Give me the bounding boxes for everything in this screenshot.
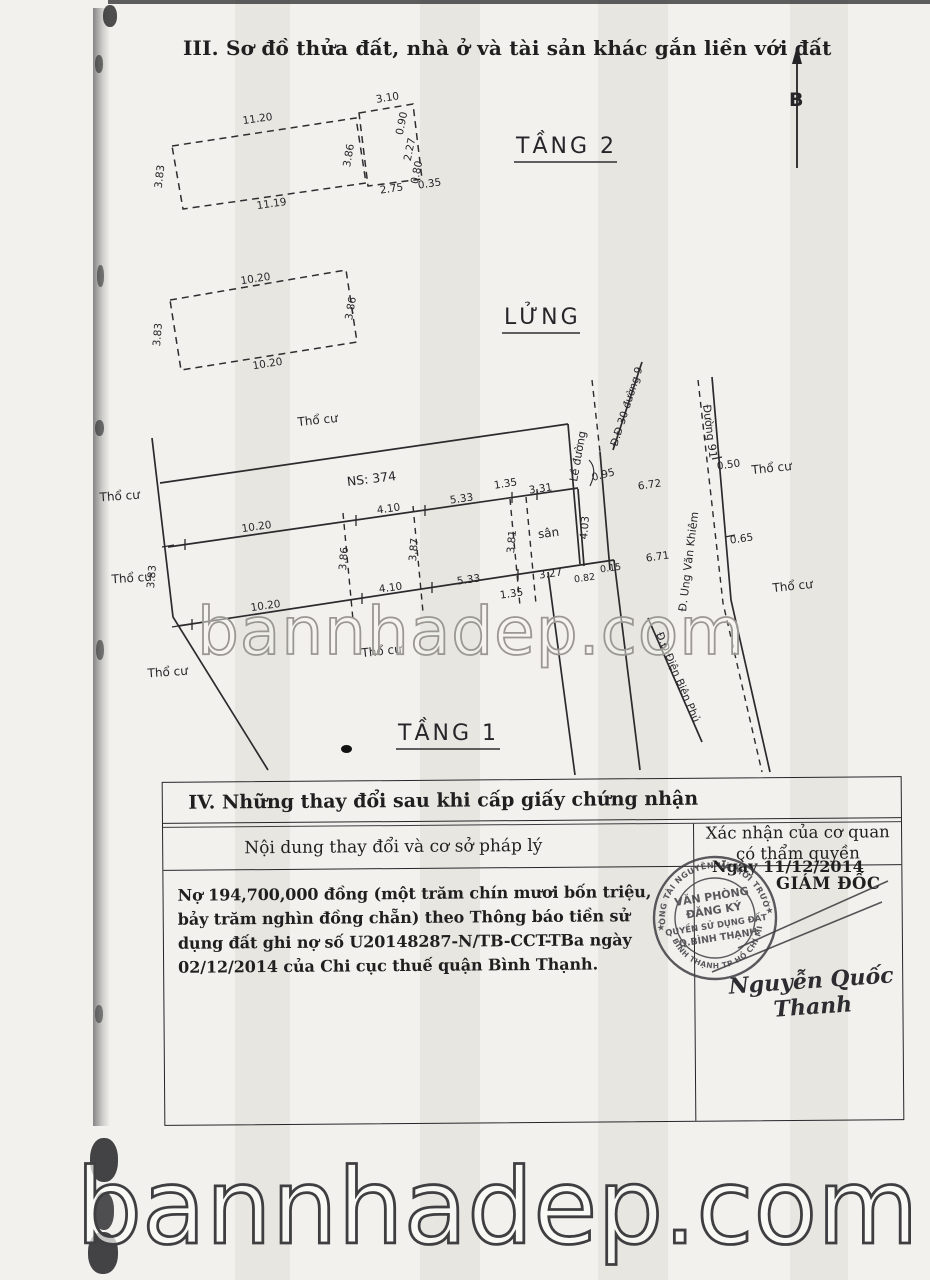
watermark-bottom-layer: bannhadep.com	[0, 1120, 930, 1280]
yard-label: sân	[537, 525, 560, 541]
dim-label: 3.87	[407, 538, 421, 562]
floor2-label: TẦNG 2	[515, 131, 617, 159]
mezzanine-label: LỬNG	[504, 303, 581, 330]
dim-label: 0.50	[716, 457, 741, 472]
floor1-road-names: Lề đường Đường 91 Đ.Đ 30 đường 9 Đ. Ung …	[567, 366, 719, 725]
scan-blotch	[95, 1005, 103, 1023]
dim-label: 3.83	[151, 323, 165, 347]
landuse-label: Thổ cư	[146, 664, 190, 681]
stamp-seal: PHÒNG TÀI NGUYÊN VÀ MÔI TRƯỜNG Q. BÌNH T…	[620, 830, 785, 994]
dim-label: 4.03	[578, 516, 592, 540]
dim-label: 3.10	[375, 90, 400, 106]
scanned-certificate-page: III. Sơ đồ thửa đất, nhà ở và tài sản kh…	[0, 0, 930, 1280]
dim-label: 0.65	[729, 531, 754, 546]
watermark-bottom: bannhadep.com	[76, 1146, 918, 1268]
dim-label: 3.86	[343, 296, 359, 321]
dim-label: 0.95	[590, 466, 616, 484]
road-name-label: Đ.Đ 30 đường 9	[608, 366, 645, 448]
dim-label: 3.83	[145, 565, 159, 589]
dim-label: 0.15	[599, 562, 621, 576]
floor2-dimensions: 11.20 3.10 11.19 3.83 3.86 0.90 2.27 0.8…	[153, 90, 442, 212]
dim-label: 5.33	[456, 572, 481, 587]
dim-label: 3.83	[153, 164, 168, 189]
dim-label: 0.82	[573, 572, 595, 586]
floor1-label: TẦNG 1	[397, 718, 499, 746]
dim-label: 11.20	[242, 111, 273, 127]
landuse-label: Thổ cư	[98, 488, 142, 505]
section4-title: IV. Những thay đổi sau khi cấp giấy chứn…	[163, 787, 724, 813]
road-name-label: Lề đường	[567, 430, 589, 483]
house-number-label: NS: 374	[346, 468, 397, 489]
mezzanine-outline	[170, 270, 357, 370]
dim-label: 3.81	[505, 530, 519, 554]
dim-label: 0.35	[417, 176, 442, 191]
landuse-label: Thổ cư	[771, 577, 815, 595]
cadastral-diagram: B 11.20 3.10 11.19 3.83 3.86 0.90 2.27 0…	[0, 0, 930, 790]
dim-label: 2.75	[379, 181, 404, 196]
floor1-boundaries	[152, 362, 770, 775]
dim-label: 0.90	[394, 111, 411, 136]
debt-entry-text: Nợ 194,700,000 đồng (một trăm chín mươi …	[163, 867, 694, 980]
dim-label: 10.20	[240, 271, 272, 288]
dim-label: 3.86	[337, 546, 351, 571]
road-name-label: Đường 91	[700, 404, 719, 459]
north-label: B	[789, 89, 803, 111]
dim-label: 2.27	[402, 137, 419, 162]
watermark-middle: bannhadep.com	[197, 593, 745, 670]
dim-label: 6.71	[645, 549, 670, 564]
landuse-label: Thổ cư	[750, 459, 794, 477]
section4-title-row: IV. Những thay đổi sau khi cấp giấy chứn…	[163, 777, 901, 824]
dim-label: 3.86	[341, 143, 357, 168]
dim-label: 1.35	[493, 476, 518, 492]
landuse-label: Thổ cư	[296, 411, 340, 429]
dim-label: 3.27	[538, 566, 563, 581]
column-header-content: Nội dung thay đổi và cơ sở pháp lý	[163, 824, 695, 870]
dim-label: 11.19	[256, 196, 287, 212]
dim-label: 6.72	[637, 477, 662, 492]
dim-label: 3.31	[528, 481, 553, 496]
floor1-dimensions: 10.20 4.10 5.33 1.35 3.31 10.20 4.10 5.3…	[145, 457, 754, 614]
